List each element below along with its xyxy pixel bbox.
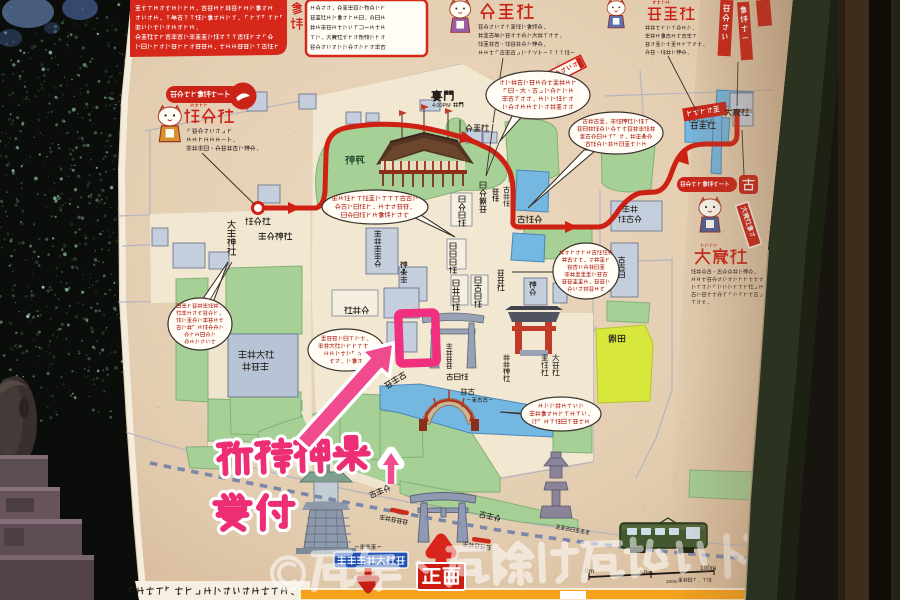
svg-text:4:00PM: 4:00PM [432,103,451,109]
